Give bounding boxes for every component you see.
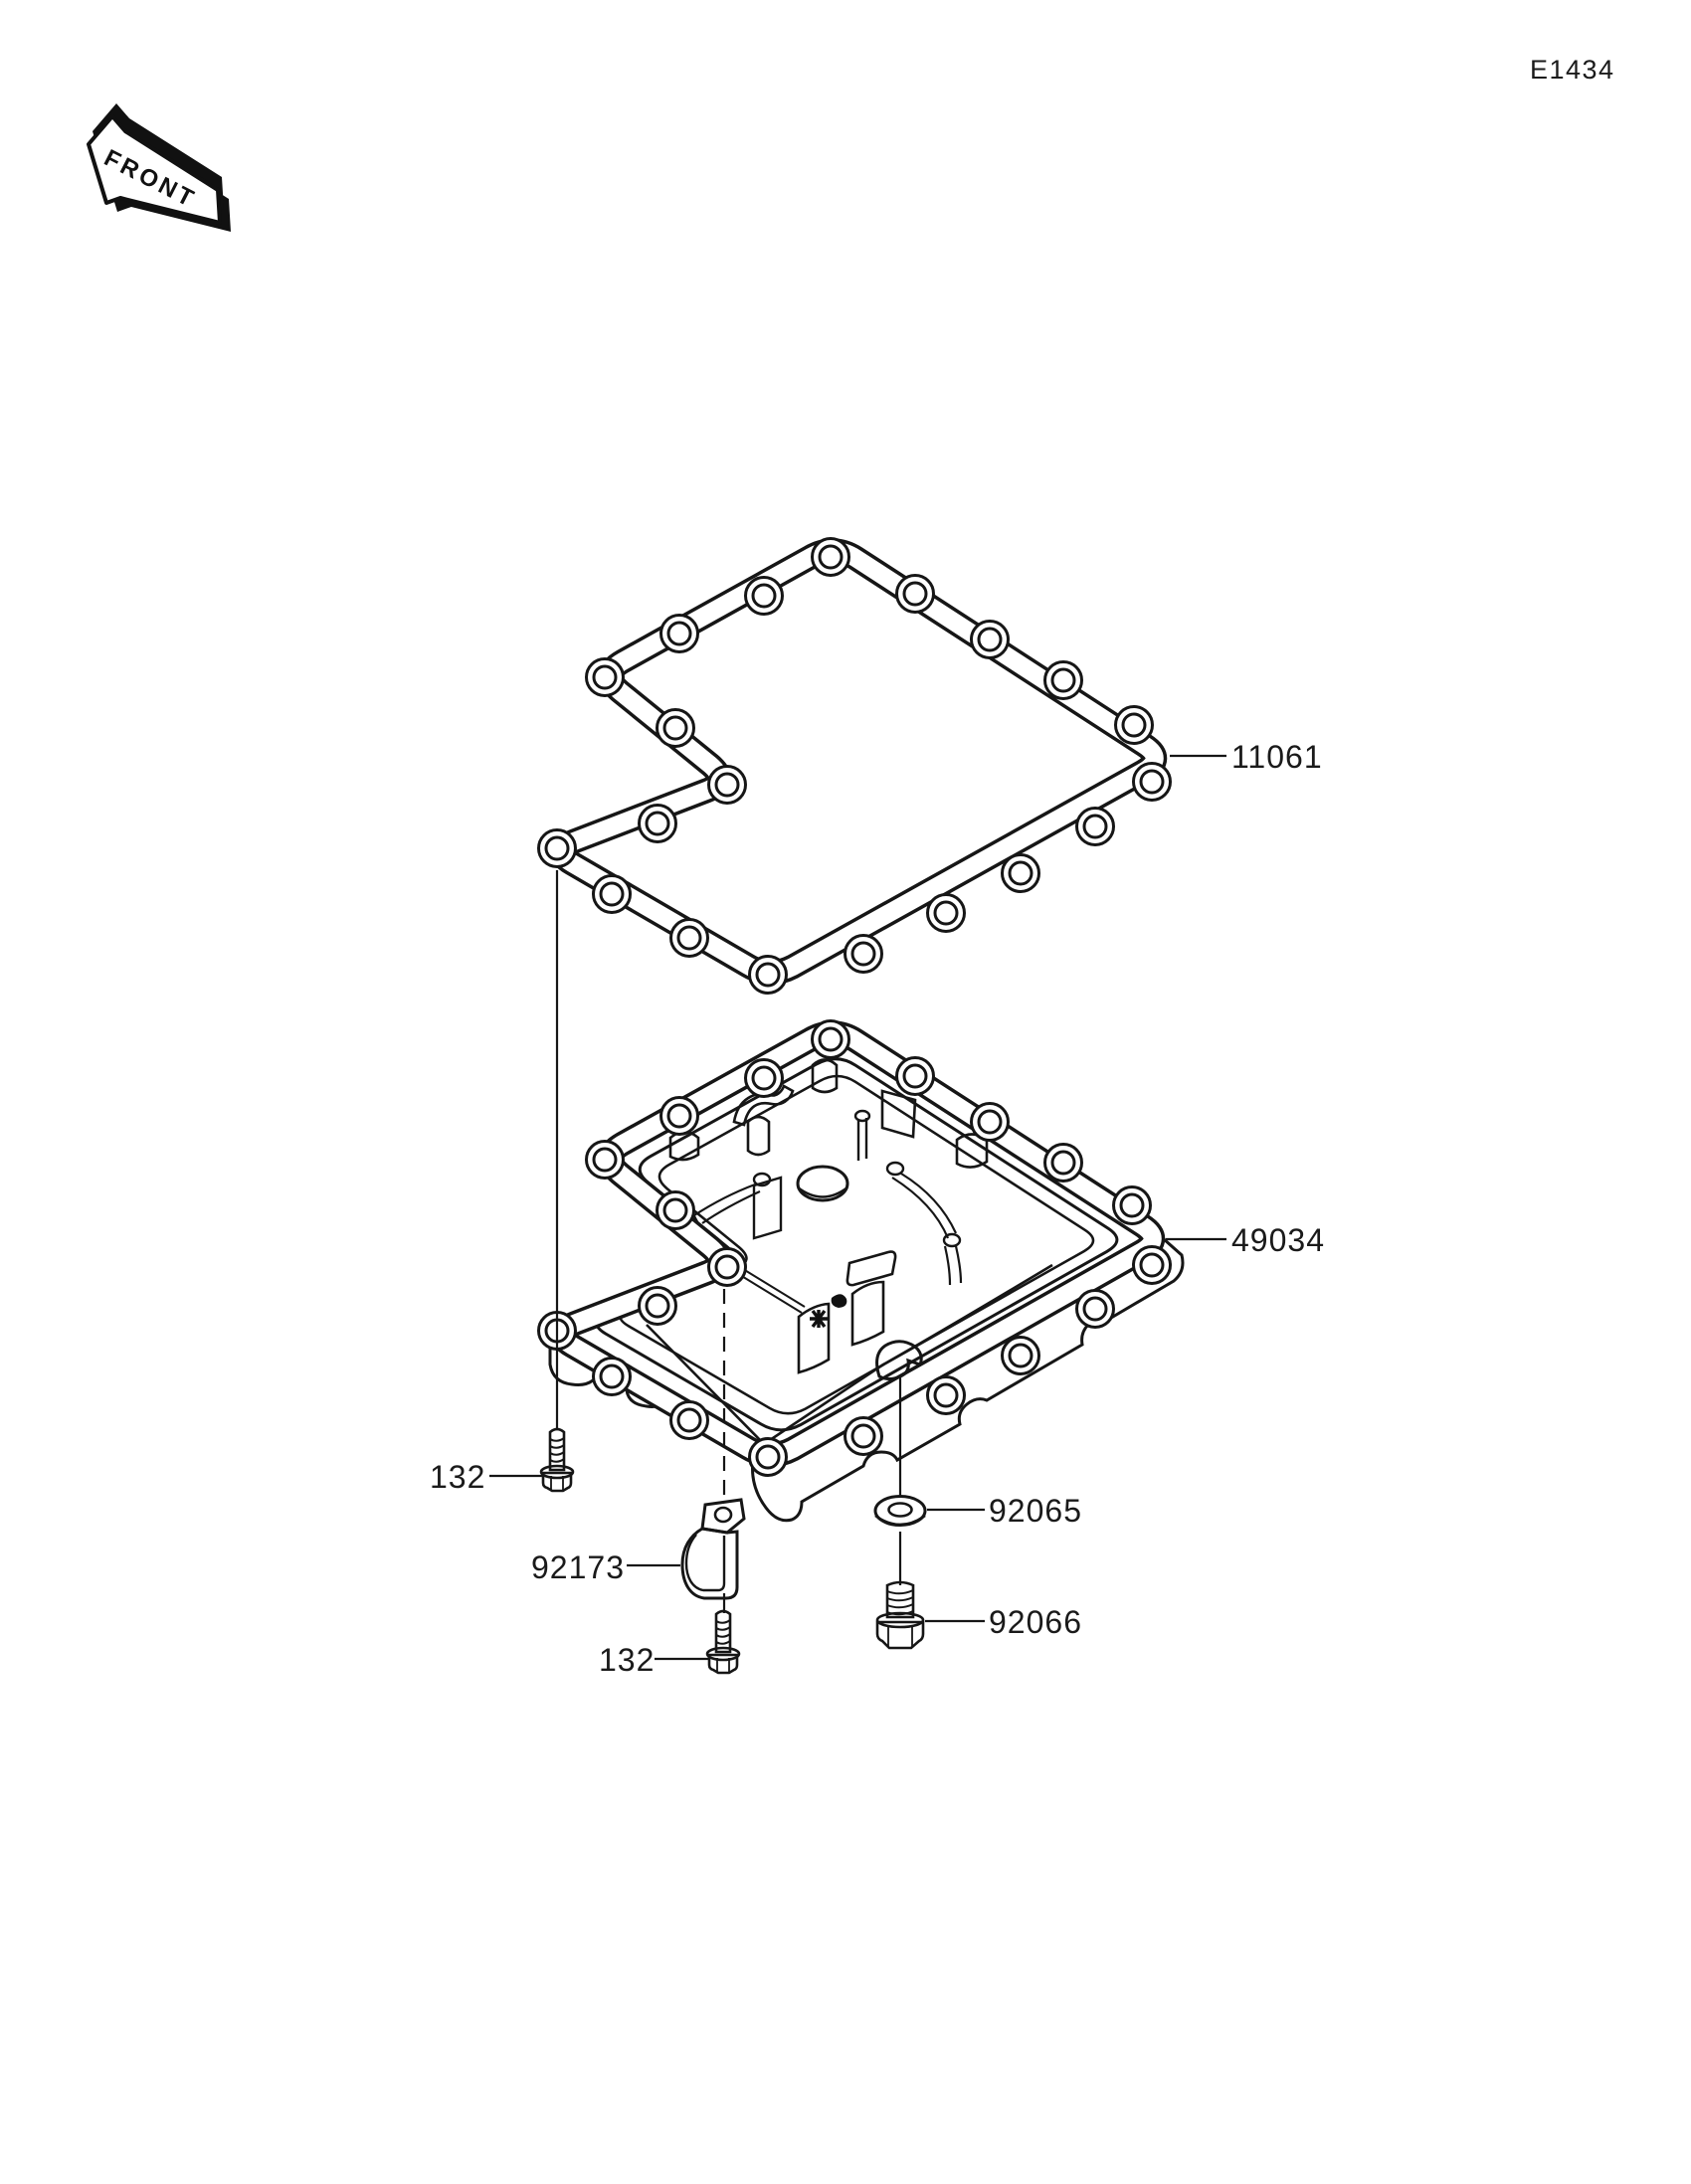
callout-oil-pan: 49034 bbox=[1231, 1222, 1325, 1258]
front-arrow: FRONT bbox=[89, 103, 231, 232]
gasket-drawing bbox=[539, 539, 1171, 994]
sealing-washer bbox=[875, 1497, 925, 1526]
callout-clamp: 92173 bbox=[531, 1549, 625, 1585]
oil-pan-drawing bbox=[539, 1021, 1184, 1521]
diagram-code: E1434 bbox=[1530, 55, 1615, 85]
callout-bolt-lower: 132 bbox=[599, 1642, 655, 1678]
flange-bolt-upper bbox=[541, 1429, 573, 1491]
parts-diagram-canvas: 11061 49034 132 92173 132 92065 92066 E1… bbox=[0, 0, 1691, 2184]
gasket-band-inner bbox=[561, 551, 1154, 973]
callout-gasket: 11061 bbox=[1231, 739, 1323, 775]
callout-bolt-upper: 132 bbox=[430, 1459, 485, 1495]
drain-plug bbox=[877, 1582, 923, 1648]
callout-washer: 92065 bbox=[989, 1493, 1082, 1529]
flange-bolt-lower bbox=[707, 1611, 739, 1673]
callout-drain-plug: 92066 bbox=[989, 1604, 1082, 1640]
clamp-bracket bbox=[682, 1500, 744, 1598]
